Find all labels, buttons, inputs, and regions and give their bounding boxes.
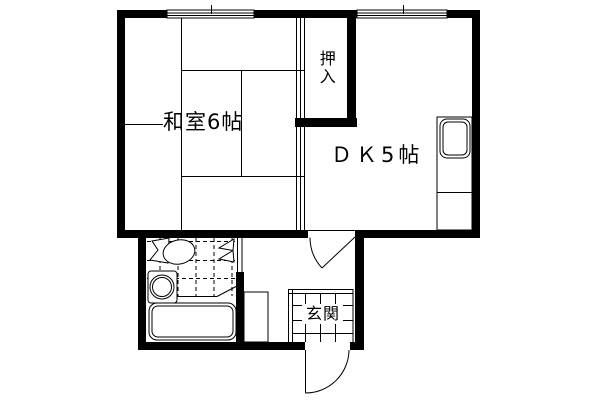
bathroom-folding-door — [219, 238, 242, 272]
wash-basin — [148, 271, 177, 303]
front-door — [305, 342, 350, 393]
bottom-main-wall-right — [355, 230, 480, 238]
shoe-cabinet — [244, 292, 268, 342]
bathroom-tile-edge — [177, 286, 237, 297]
bathroom-right-wall — [236, 272, 244, 350]
door-leaf — [322, 237, 355, 268]
floor-plan-drawing — [0, 0, 600, 400]
room-label-oshiire: 押入 — [317, 50, 334, 86]
dk-hall-door — [308, 230, 355, 268]
floor-plan: 和室6帖 ＤＫ5帖 押入 玄関 — [0, 0, 600, 400]
closet-bottom-wall — [295, 118, 357, 127]
left-wall — [117, 10, 125, 238]
top-wall-segment-b — [254, 10, 357, 18]
top-window-right — [357, 5, 447, 18]
right-wall — [472, 10, 480, 238]
hall-right-wall — [355, 238, 364, 350]
closet-right-wall — [347, 18, 356, 118]
bottom-lower-wall-right — [350, 342, 364, 350]
door-swing-arc — [306, 350, 350, 393]
room-label-washitsu: 和室6帖 — [163, 111, 243, 133]
kitchen-counter — [437, 117, 472, 230]
bathroom-left-wall — [138, 238, 146, 350]
bathtub — [149, 303, 236, 340]
top-window-left — [167, 5, 254, 18]
room-label-dk: ＤＫ5帖 — [331, 144, 423, 166]
bottom-main-wall-left — [117, 230, 308, 238]
room-label-genkan: 玄関 — [306, 306, 340, 323]
door-swing-arc — [310, 238, 322, 269]
bottom-lower-wall-left — [138, 342, 305, 350]
kitchen-sink — [440, 119, 470, 158]
